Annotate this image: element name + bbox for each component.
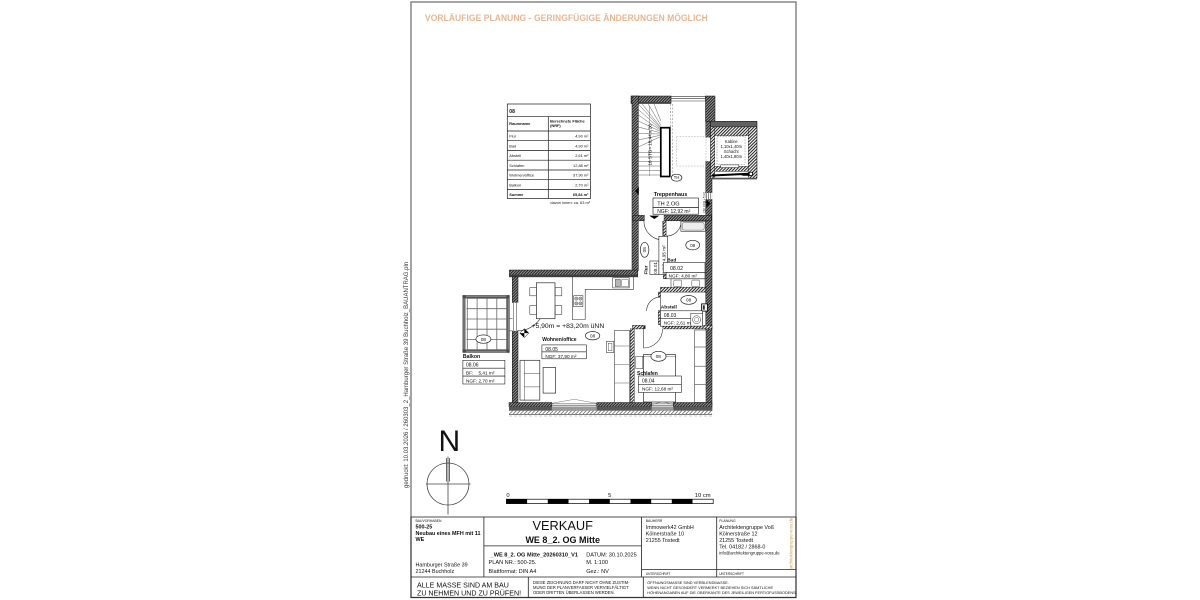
svg-text:BAUHERR: BAUHERR [646,519,663,523]
svg-text:08.06: 08.06 [466,363,479,369]
svg-text:NGF: 2,61 m²: NGF: 2,61 m² [664,320,693,325]
svg-text:NGF: 12,68 m²: NGF: 12,68 m² [642,387,673,392]
svg-text:NGF: 12,92 m²: NGF: 12,92 m² [657,209,690,215]
svg-text:info@architektengruppe-voss.de: info@architektengruppe-voss.de [719,551,780,556]
svg-text:Flur: Flur [643,265,649,274]
svg-text:12,88 m²: 12,88 m² [573,163,589,168]
svg-text:37,90 m²: 37,90 m² [573,173,589,178]
svg-text:08.03: 08.03 [664,313,677,319]
svg-text:N: N [439,425,461,458]
svg-text:davon innen: ca. 63 m²: davon innen: ca. 63 m² [550,200,590,205]
svg-text:Wohnen/office: Wohnen/office [542,337,577,343]
svg-text:Kölnerstraße 12: Kölnerstraße 12 [719,532,757,538]
svg-text:PLAN NR.: 500-25.: PLAN NR.: 500-25. [489,560,537,566]
svg-text:16 STG= 18,44 x 26: 16 STG= 18,44 x 26 [648,124,653,166]
svg-text:2,70 m²: 2,70 m² [575,182,589,187]
svg-text:Treppenhaus: Treppenhaus [654,192,688,198]
svg-text:1,40x1,80m: 1,40x1,80m [721,154,743,159]
svg-text:4,90 m²: 4,90 m² [575,143,589,148]
svg-text:WE: WE [416,537,425,543]
svg-text:08.01: 08.01 [653,262,658,274]
svg-text:M. 1:100: M. 1:100 [586,560,608,566]
svg-text:08: 08 [686,298,692,303]
svg-text:Balkon: Balkon [509,182,521,187]
svg-text:DATUM: 30.10.2025: DATUM: 30.10.2025 [586,552,637,558]
svg-text:08: 08 [481,337,487,342]
svg-text:WENN NICHT GESONDERT VERMERKT: WENN NICHT GESONDERT VERMERKT BEZIEHEN S… [647,586,773,590]
svg-text:NGF: 37,90 m²: NGF: 37,90 m² [545,354,576,359]
svg-text:TH 2.OG: TH 2.OG [657,202,679,208]
svg-text:21255 Tostedt: 21255 Tostedt [646,538,680,544]
svg-text:Neubau eines MFH mit 11: Neubau eines MFH mit 11 [416,531,481,537]
svg-text:5: 5 [608,493,611,499]
svg-text:Blattformat: DIN A4: Blattformat: DIN A4 [489,569,537,575]
svg-text:VORLÄUFIGE PLANUNG - GERINGFÜG: VORLÄUFIGE PLANUNG - GERINGFÜGIGE ÄNDERU… [425,12,708,23]
svg-text:Immowerk42 GmbH: Immowerk42 GmbH [646,525,694,531]
svg-text:Gez.: NV: Gez.: NV [586,569,609,575]
svg-text:architektengruppe-voss.de: architektengruppe-voss.de [788,517,793,569]
svg-text:ALLE MASSE SIND AM BAU: ALLE MASSE SIND AM BAU [417,581,509,589]
svg-text:VERKAUF: VERKAUF [532,518,593,533]
svg-text:Flur: Flur [509,134,516,139]
svg-text:Schlafen: Schlafen [509,163,524,168]
svg-text:ÖFFNUNGSMASSE SIND VERBLENDMAS: ÖFFNUNGSMASSE SIND VERBLENDMASSE. [647,581,729,585]
svg-text:NGF: 2,70 m²: NGF: 2,70 m² [466,378,495,383]
svg-text:Bad: Bad [509,143,516,148]
svg-text:Hamburger Straße 39: Hamburger Straße 39 [416,563,468,569]
svg-text:21255 Tostedt: 21255 Tostedt [719,538,753,544]
svg-text:08: 08 [642,247,647,253]
svg-text:BAUVORHABEN: BAUVORHABEN [416,519,443,523]
svg-text:Abstell: Abstell [661,305,677,311]
svg-text:08: 08 [509,109,515,115]
svg-text:08.02: 08.02 [670,266,683,272]
svg-text:Summe: Summe [509,192,524,197]
svg-text:Wohnen/office: Wohnen/office [509,173,534,178]
svg-text:Balkon: Balkon [463,354,480,360]
svg-text:ODER DRITTEN ÜBERLASSEN WER: ODER DRITTEN ÜBERLASSEN WERDEN. [533,590,615,595]
svg-text:PLANUNG: PLANUNG [719,519,736,523]
svg-text:Architektengruppe Voß: Architektengruppe Voß [719,525,775,531]
svg-text:gedruckt: 10.03.2026 / 260303_: gedruckt: 10.03.2026 / 260303_2_Hamburge… [404,262,410,488]
svg-text:Kölnerstraße 10: Kölnerstraße 10 [646,532,684,538]
svg-text:08: 08 [690,243,696,248]
svg-text:08.04: 08.04 [642,379,655,385]
svg-text:WE 8_2. OG Mitte: WE 8_2. OG Mitte [525,535,600,545]
svg-text:10 cm: 10 cm [695,493,711,499]
svg-text:Abstell: Abstell [509,153,521,158]
svg-text:08: 08 [656,354,662,359]
svg-text:HÖHENANGABEN AUF DIE OBERKANTE: HÖHENANGABEN AUF DIE OBERKANTE DES JEWEI… [647,591,796,595]
svg-text:08: 08 [590,333,596,338]
svg-text:+5,90m = +83,20m üNN: +5,90m = +83,20m üNN [532,323,605,330]
svg-text:TH: TH [674,175,680,180]
svg-text:UNTERSCHRIFT: UNTERSCHRIFT [646,572,671,576]
svg-text:21244 Buchholz: 21244 Buchholz [416,569,455,575]
svg-text:UNTERSCHRIFT: UNTERSCHRIFT [719,572,744,576]
svg-text:Raumname: Raumname [509,121,531,126]
svg-text:ZU NEHMEN UND ZU PRÜFEN!: ZU NEHMEN UND ZU PRÜFEN! [417,589,521,597]
svg-text:4,90 m²: 4,90 m² [575,134,589,139]
svg-text:2,61 m²: 2,61 m² [575,153,589,158]
svg-text:OK FFB +5,90: OK FFB +5,90 [703,192,707,213]
svg-text:(NRF): (NRF) [550,123,561,128]
svg-text:NGF: 4,80 m²: NGF: 4,80 m² [669,274,698,279]
svg-text:500-25: 500-25 [416,525,433,531]
svg-text:BF: 5,41 m²: BF: 5,41 m² [466,371,495,376]
svg-text:0: 0 [506,493,509,499]
svg-text:_WE 8_2. OG Mitte_20260310_V1: _WE 8_2. OG Mitte_20260310_V1 [490,552,578,558]
svg-text:65,84 m²: 65,84 m² [573,192,589,197]
